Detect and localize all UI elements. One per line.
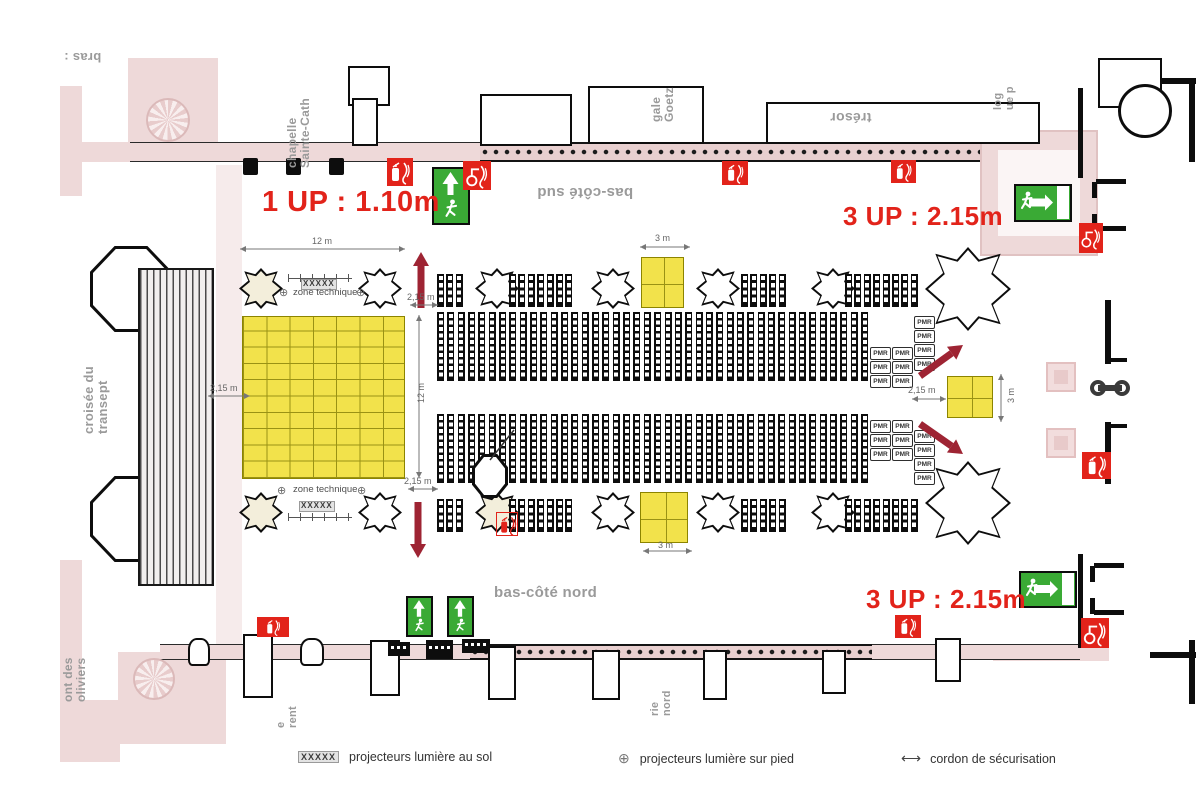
exit-sign [447,596,474,637]
seat-strip [571,414,578,483]
seat-strip [854,274,861,307]
dimension-arrow [996,372,1006,424]
fire-extinguisher-icon [1082,452,1111,479]
zone-technique-label: zone technique [293,287,357,298]
seat-cells [449,314,453,379]
seat-strip [518,499,525,532]
seat-strip [873,274,880,307]
seat-strip [592,414,599,483]
seat-strip [456,499,463,532]
wall-pink [60,700,120,762]
dimension-label: 12 m [416,383,426,403]
seat-strip [799,312,806,381]
seat-strip [750,274,757,307]
seat-strip [478,312,485,381]
seat-strip [809,414,816,483]
seat-cells [511,314,515,379]
seat-cells [842,416,846,481]
floor-light-legend-icon: XXXXX [298,751,339,763]
seat-strip [565,274,572,307]
seat-strip [760,274,767,307]
seat-cells [614,416,618,481]
camera-platform [641,257,684,308]
wall-segment [1109,358,1127,362]
extinguisher-glyph [463,161,491,190]
seat-cells [563,314,567,379]
column-base-core [1054,370,1068,384]
seat-cells [697,314,701,379]
seat-cells [490,314,494,379]
pier-small [329,158,344,175]
seat-strip [556,499,563,532]
wall-segment [1094,610,1124,615]
seat-strip [540,414,547,483]
seat-cells [573,416,577,481]
seat-cells [863,314,867,379]
seat-cells [573,314,577,379]
exit-sign [406,596,433,637]
seat-strip [820,312,827,381]
seat-cells [842,314,846,379]
seat-cells [583,416,587,481]
fire-extinguisher-icon [496,512,518,536]
seat-cells [666,416,670,481]
seat-strip [654,312,661,381]
seat-cells [800,416,804,481]
chapel-room [352,98,378,146]
seat-strip [789,414,796,483]
seat-strip [741,499,748,532]
seat-cells [539,501,543,530]
seat-strip [556,274,563,307]
pier [488,646,516,700]
seat-cells [635,314,639,379]
seat-cells [884,276,888,305]
nave-pillar-core [242,495,280,530]
seat-strip [602,312,609,381]
seat-strip [518,274,525,307]
pmr-seat-badge: PMR [914,316,935,329]
seat-cells [865,276,869,305]
pier [243,634,273,698]
seat-cells [604,314,608,379]
dimension-label: 3 m [658,540,673,550]
seat-strip [530,312,537,381]
pmr-seat-badge: PMR [870,448,891,461]
seat-cells [470,314,474,379]
seat-cells [594,314,598,379]
seat-strip [820,414,827,483]
seat-strip [528,274,535,307]
seat-strip [530,414,537,483]
seat-strip [446,499,453,532]
seat-cells [912,276,916,305]
fire-extinguisher-icon [891,160,916,183]
seat-strip [741,274,748,307]
seat-strip [685,414,692,483]
seat-strip [737,312,744,381]
place-label: bras : [64,50,101,64]
seat-cells [532,416,536,481]
seat-cells [457,501,461,530]
seat-cells [548,501,552,530]
seat-strip [769,274,776,307]
pier-small [243,158,258,175]
fire-extinguisher-icon [1079,223,1103,253]
seat-strip [851,312,858,381]
gallery-band [868,644,1080,660]
nave-pillar-core [594,271,632,306]
seat-cells [594,416,598,481]
pier-bulb [300,638,324,666]
seat-cells [604,416,608,481]
seat-cells [771,501,775,530]
seat-cells [759,416,763,481]
seat-strip [864,499,871,532]
seat-cells [821,416,825,481]
fire-extinguisher-icon [722,161,748,185]
dimension-arrow [910,394,948,404]
zone-technique-label: zone technique [293,484,357,495]
fire-extinguisher-icon [1081,618,1109,648]
nave-pillar-core [594,495,632,530]
seat-cells [558,276,562,305]
seat-strip [830,312,837,381]
seat-cells [707,314,711,379]
extinguisher-glyph [1082,452,1111,479]
seat-strip [437,414,444,483]
up-height-annotation: 3 UP : 2.15m [843,201,1003,232]
seat-strip [758,414,765,483]
floor-light-marks: XXXXX [299,501,335,512]
seat-cells [790,416,794,481]
seat-cells [752,501,756,530]
seat-strip [883,274,890,307]
seat-strip [458,312,465,381]
seat-cells [645,416,649,481]
nave-pillar-core [361,495,399,530]
seat-cells [529,501,533,530]
floor-plan: XXXXXprojecteurs lumière au sol⊕projecte… [0,0,1200,807]
seat-strip [778,414,785,483]
chapel-room [588,86,704,144]
seat-strip [901,499,908,532]
seat-cells [752,276,756,305]
seat-strip [561,312,568,381]
fire-extinguisher-icon [257,617,289,637]
seat-strip [809,312,816,381]
legend-item: ⊕projecteurs lumière sur pied [618,750,794,767]
seat-cells [521,314,525,379]
seat-cells [625,416,629,481]
seat-strip [509,312,516,381]
seat-strip [665,312,672,381]
seat-strip [769,499,776,532]
pmr-seat-badge: PMR [870,375,891,388]
choir-stalls-hatch [138,268,214,586]
seat-cells [780,501,784,530]
pier [592,650,620,700]
seat-cells [542,314,546,379]
exit-pictogram [408,598,430,634]
seat-cells [743,276,747,305]
seat-strip [565,499,572,532]
seat-cells [771,276,775,305]
seat-strip [750,499,757,532]
nave-pillar-core [928,464,1008,542]
seat-strip [468,312,475,381]
legend-label: projecteurs lumière au sol [349,750,492,764]
seat-strip [883,499,890,532]
seat-cells [718,416,722,481]
seat-strip [551,312,558,381]
exit-sign [1014,184,1072,222]
fire-extinguisher-icon [463,161,491,190]
seat-cells [532,314,536,379]
seat-strip [760,499,767,532]
seat-strip [696,312,703,381]
chapel-room [480,94,572,146]
seat-cells [743,501,747,530]
seat-cells [656,416,660,481]
seat-cells [800,314,804,379]
rose-window [146,98,190,142]
seat-strip [447,414,454,483]
place-label: rienord [650,668,674,716]
exit-pictogram [1021,573,1074,605]
seat-cells [852,314,856,379]
wall-segment [1096,179,1126,184]
seat-cells [780,416,784,481]
place-label: bas-côté sud [537,184,633,200]
seat-cells [539,276,543,305]
wall-segment [1078,88,1083,178]
seat-cells [761,501,765,530]
red-arrow [406,490,430,570]
door-threshold [426,640,453,659]
nave-pillar-core [699,271,737,306]
seat-cells [790,314,794,379]
exit-pictogram [1016,186,1069,219]
seat-cells [459,314,463,379]
camera-platform [640,492,688,543]
pmr-seat-badge: PMR [870,361,891,374]
pulpit-pointer-line [486,426,526,470]
nave-pillar-core [242,271,280,306]
stand-light-icon: ⊕ [356,288,365,299]
seat-cells [847,501,851,530]
seat-strip [768,414,775,483]
seat-cells [548,276,552,305]
wall-segment [1105,300,1111,364]
seat-cells [738,416,742,481]
seat-strip [830,414,837,483]
seat-strip [789,312,796,381]
seat-cells [625,314,629,379]
seat-cells [718,314,722,379]
wall-segment [1109,424,1127,428]
cordon-tick-line [288,513,352,521]
door-threshold [388,642,410,656]
seat-cells [520,501,524,530]
extinguisher-glyph [1081,618,1109,648]
stage-platform [242,316,405,479]
pier [703,650,727,700]
seat-strip [864,274,871,307]
seat-strip [758,312,765,381]
seat-cells [912,501,916,530]
seat-cells [448,501,452,530]
seat-strip [779,499,786,532]
seat-cells [831,314,835,379]
seat-cells [697,416,701,481]
seat-strip [737,414,744,483]
seat-strip [540,312,547,381]
seat-cells [459,416,463,481]
seat-cells [852,416,856,481]
seat-cells [728,314,732,379]
dimension-label: 12 m [312,236,332,246]
font-bar [1098,385,1122,391]
seat-cells [439,314,443,379]
legend-label: cordon de sécurisation [930,752,1056,766]
seat-cells [821,314,825,379]
seat-cells [749,416,753,481]
wall-pink [60,86,82,196]
seat-cells [856,276,860,305]
exit-pictogram [449,598,471,634]
seat-strip [633,414,640,483]
door-threshold-marks [391,646,407,649]
seat-cells [884,501,888,530]
seat-strip [456,274,463,307]
pmr-seat-badge: PMR [870,347,891,360]
seat-cells [707,416,711,481]
seat-cells [511,276,515,305]
seat-cells [894,501,898,530]
exit-sign [1019,571,1077,608]
seat-cells [558,501,562,530]
seat-strip [447,312,454,381]
seat-cells [811,416,815,481]
seat-strip [716,414,723,483]
seat-strip [623,312,630,381]
seat-cells [529,276,533,305]
seat-strip [582,414,589,483]
wall-segment [1090,566,1095,582]
seat-strip [901,274,908,307]
seat-strip [861,312,868,381]
stand-light-legend-icon: ⊕ [618,750,630,767]
seat-cells [439,501,443,530]
wall-segment [1189,640,1195,704]
seat-strip [665,414,672,483]
seat-cells [480,314,484,379]
place-label: chapelleSainte-Cath [286,56,312,168]
extinguisher-glyph [257,617,289,637]
up-height-annotation: 1 UP : 1.10m [262,186,440,219]
seat-strip [623,414,630,483]
seat-cells [687,416,691,481]
extinguisher-glyph [497,513,519,537]
stand-light-icon: ⊕ [279,288,288,299]
seat-strip [799,414,806,483]
pmr-seat-badge: PMR [870,420,891,433]
colonnade-band [470,644,872,660]
pmr-seat-badge: PMR [870,434,891,447]
seat-strip [644,312,651,381]
seat-cells [865,501,869,530]
pier-bulb [188,638,210,666]
seat-strip [561,414,568,483]
place-label: bas-côté nord [494,585,597,601]
seat-cells [449,416,453,481]
seat-strip [509,274,516,307]
seat-cells [780,276,784,305]
place-label: ont desoliviers [62,616,88,702]
wall-segment [1094,563,1124,568]
seat-cells [728,416,732,481]
seat-cells [520,276,524,305]
seat-strip [437,312,444,381]
seat-strip [613,312,620,381]
place-label: erent [276,682,300,728]
seat-cells [894,276,898,305]
nave-pillar-core [361,271,399,306]
seat-strip [778,312,785,381]
seat-cells [831,416,835,481]
seat-strip [537,499,544,532]
seat-strip [489,312,496,381]
seat-strip [537,274,544,307]
seat-cells [448,276,452,305]
seat-strip [675,312,682,381]
seat-strip [675,414,682,483]
seat-strip [654,414,661,483]
seat-strip [747,312,754,381]
dimension-label: 2,15 m [407,292,435,302]
seat-cells [501,314,505,379]
seat-strip [727,312,734,381]
extinguisher-glyph [722,161,748,185]
seat-strip [747,414,754,483]
wall-pink [118,652,226,744]
legend-item: ⟷cordon de sécurisation [901,750,1056,767]
seat-cells [903,501,907,530]
red-arrow [908,412,975,466]
seat-strip [845,499,852,532]
seat-cells [863,416,867,481]
seat-strip [685,312,692,381]
place-label: croisée dutransept [82,328,110,434]
seat-strip [779,274,786,307]
seat-cells [875,501,879,530]
seat-strip [602,414,609,483]
seat-cells [542,416,546,481]
seat-strip [854,499,861,532]
seat-strip [851,414,858,483]
seat-cells [856,501,860,530]
extinguisher-glyph [891,160,916,183]
seat-strip [633,312,640,381]
seat-strip [911,499,918,532]
pmr-seat-badge: PMR [914,472,935,485]
seat-cells [656,314,660,379]
seat-cells [749,314,753,379]
seat-cells [567,501,571,530]
seat-strip [547,499,554,532]
seat-strip [592,312,599,381]
